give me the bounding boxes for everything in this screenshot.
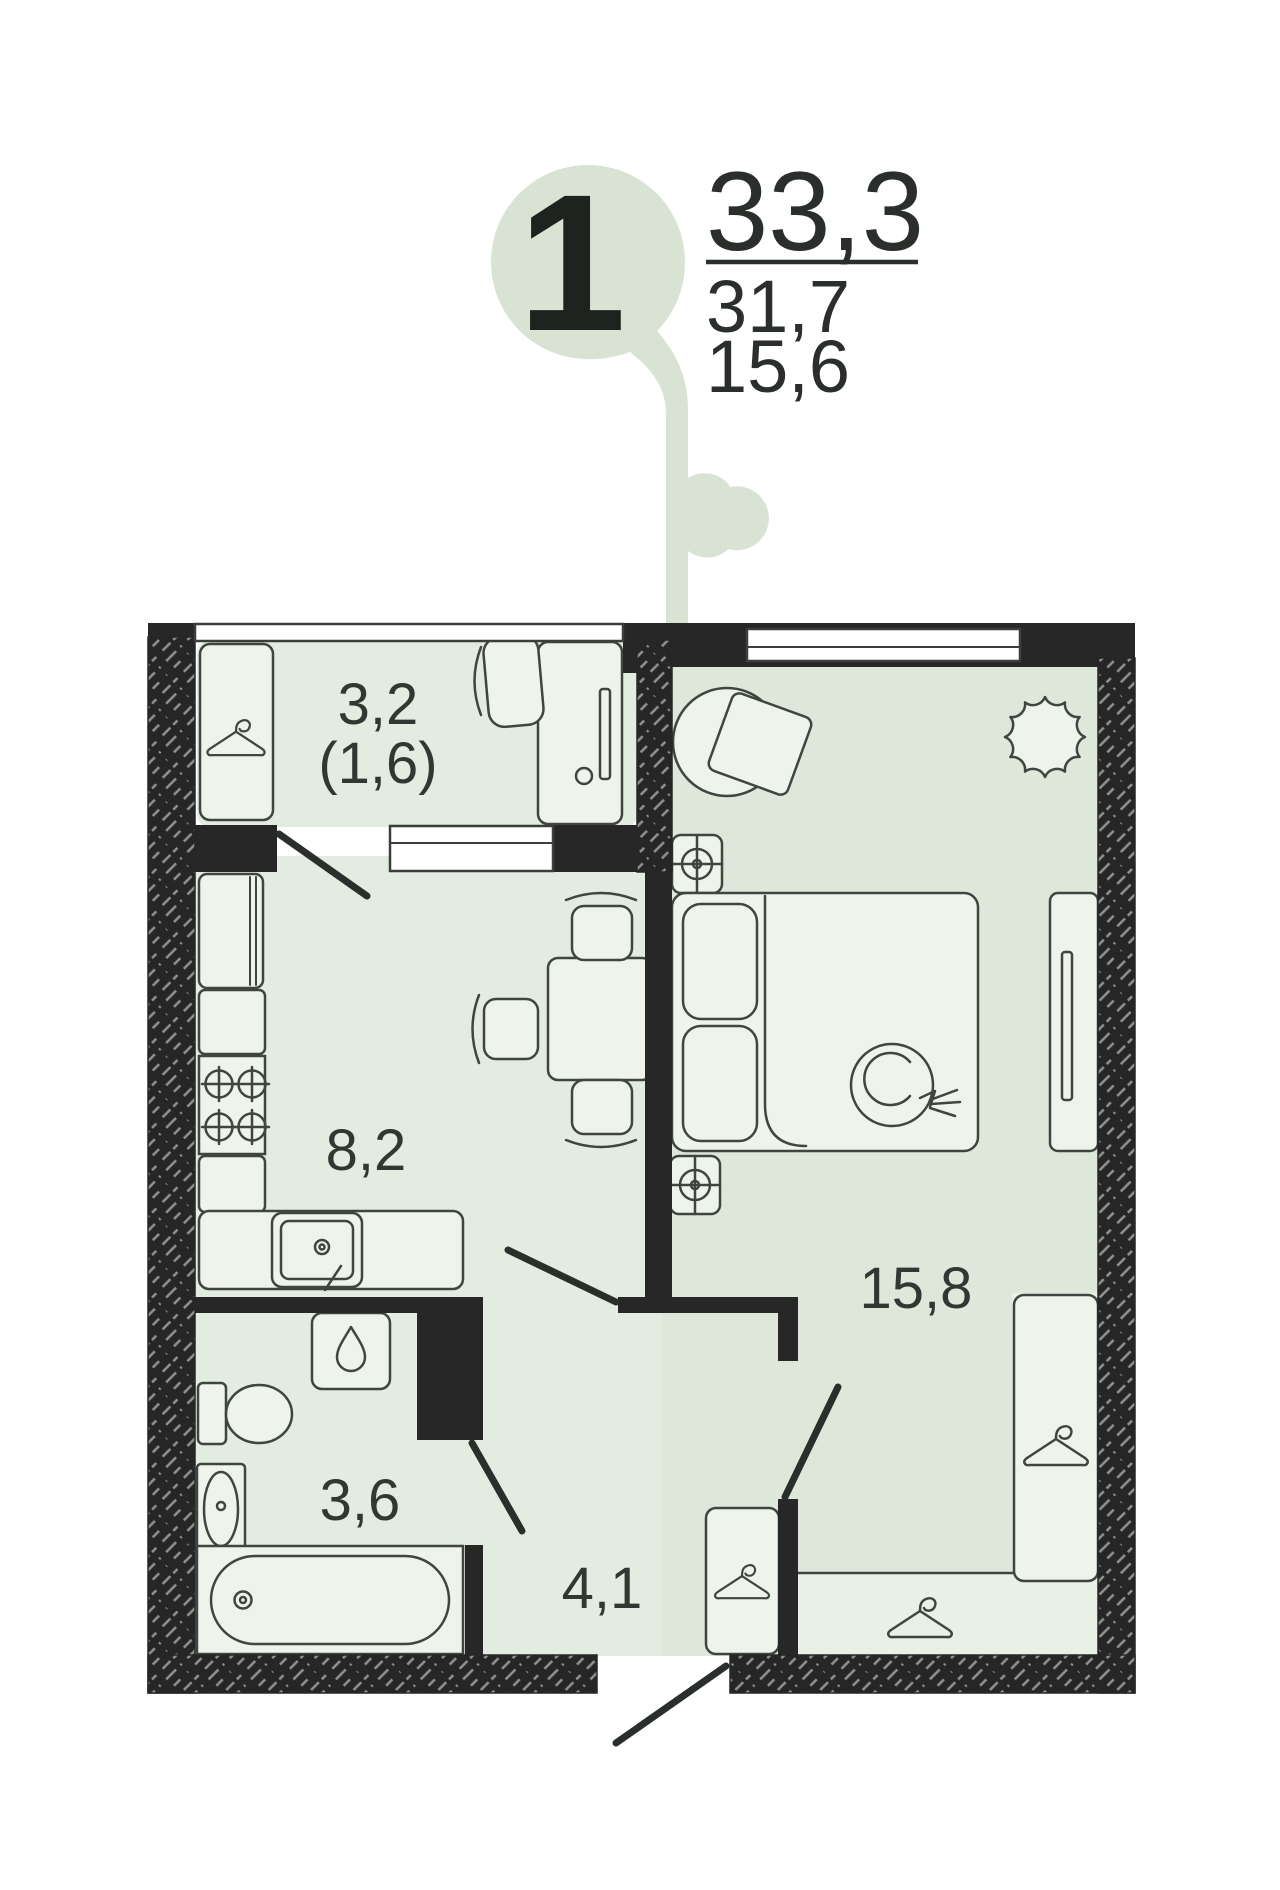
- label-balcony-reduced-area: (1,6): [318, 731, 437, 796]
- fridge: [199, 874, 263, 988]
- label-kitchen-area: 8,2: [326, 1118, 407, 1183]
- bed: [672, 893, 978, 1151]
- right-exterior-wall: [1098, 658, 1135, 1693]
- balcony-kitchen-wall-left: [195, 825, 277, 872]
- balcony-kitchen-window: [390, 826, 553, 871]
- kitchen-counter-top: [199, 990, 265, 1054]
- dining-table: [548, 958, 652, 1080]
- radiator-icon: [670, 1156, 720, 1214]
- tv-console: [1050, 893, 1098, 1151]
- bedroom-door-jamb: [778, 1297, 798, 1361]
- balcony-chair: [482, 634, 545, 728]
- dining-chair-top: [572, 906, 632, 960]
- floor-plan-page: 1 33,3 31,7 15,6: [0, 0, 1280, 1890]
- label-bedroom-area: 15,8: [860, 1256, 973, 1321]
- hallway-wardrobe: [706, 1508, 779, 1654]
- label-balcony-area: 3,2: [338, 672, 419, 737]
- bathtub: [197, 1546, 463, 1654]
- wardrobe-zone-bottom: [797, 1573, 1098, 1655]
- dining-chair-bottom: [572, 1080, 632, 1134]
- floor-plan-canvas: 1 33,3 31,7 15,6: [0, 0, 1280, 1890]
- bottom-exterior-wall-left: [148, 1655, 597, 1693]
- hall-bedroom-wall: [618, 1297, 797, 1313]
- mid-vertical-wall: [645, 825, 672, 1313]
- bottom-exterior-wall-right: [730, 1655, 1135, 1693]
- entrance-door: [616, 1666, 726, 1743]
- bedroom-window: [747, 629, 1020, 661]
- radiator-icon: [672, 835, 722, 893]
- mid-insulated-wall: [637, 640, 672, 872]
- left-exterior-wall: [148, 637, 195, 1693]
- bedroom-lower-wall: [778, 1499, 798, 1655]
- balcony-glazing: [195, 624, 623, 641]
- washing-machine: [312, 1313, 390, 1389]
- balcony-kitchen-wall-right: [553, 825, 645, 872]
- toilet-bowl: [226, 1385, 292, 1443]
- dining-chair-left: [484, 999, 538, 1059]
- area-total: 33,3: [706, 149, 924, 274]
- toilet-tank: [198, 1383, 226, 1444]
- kitchen-counter-mid: [199, 1156, 265, 1212]
- bathroom-shaft: [417, 1297, 483, 1440]
- label-bathroom-area: 3,6: [320, 1468, 401, 1533]
- rooms-count: 1: [518, 154, 626, 372]
- area-room: 15,6: [706, 325, 850, 408]
- bathroom-lower-wall: [465, 1545, 483, 1655]
- label-hallway-area: 4,1: [562, 1556, 643, 1621]
- info-bubble: 1 33,3 31,7 15,6: [491, 149, 924, 623]
- hallway-furniture: [706, 1508, 779, 1654]
